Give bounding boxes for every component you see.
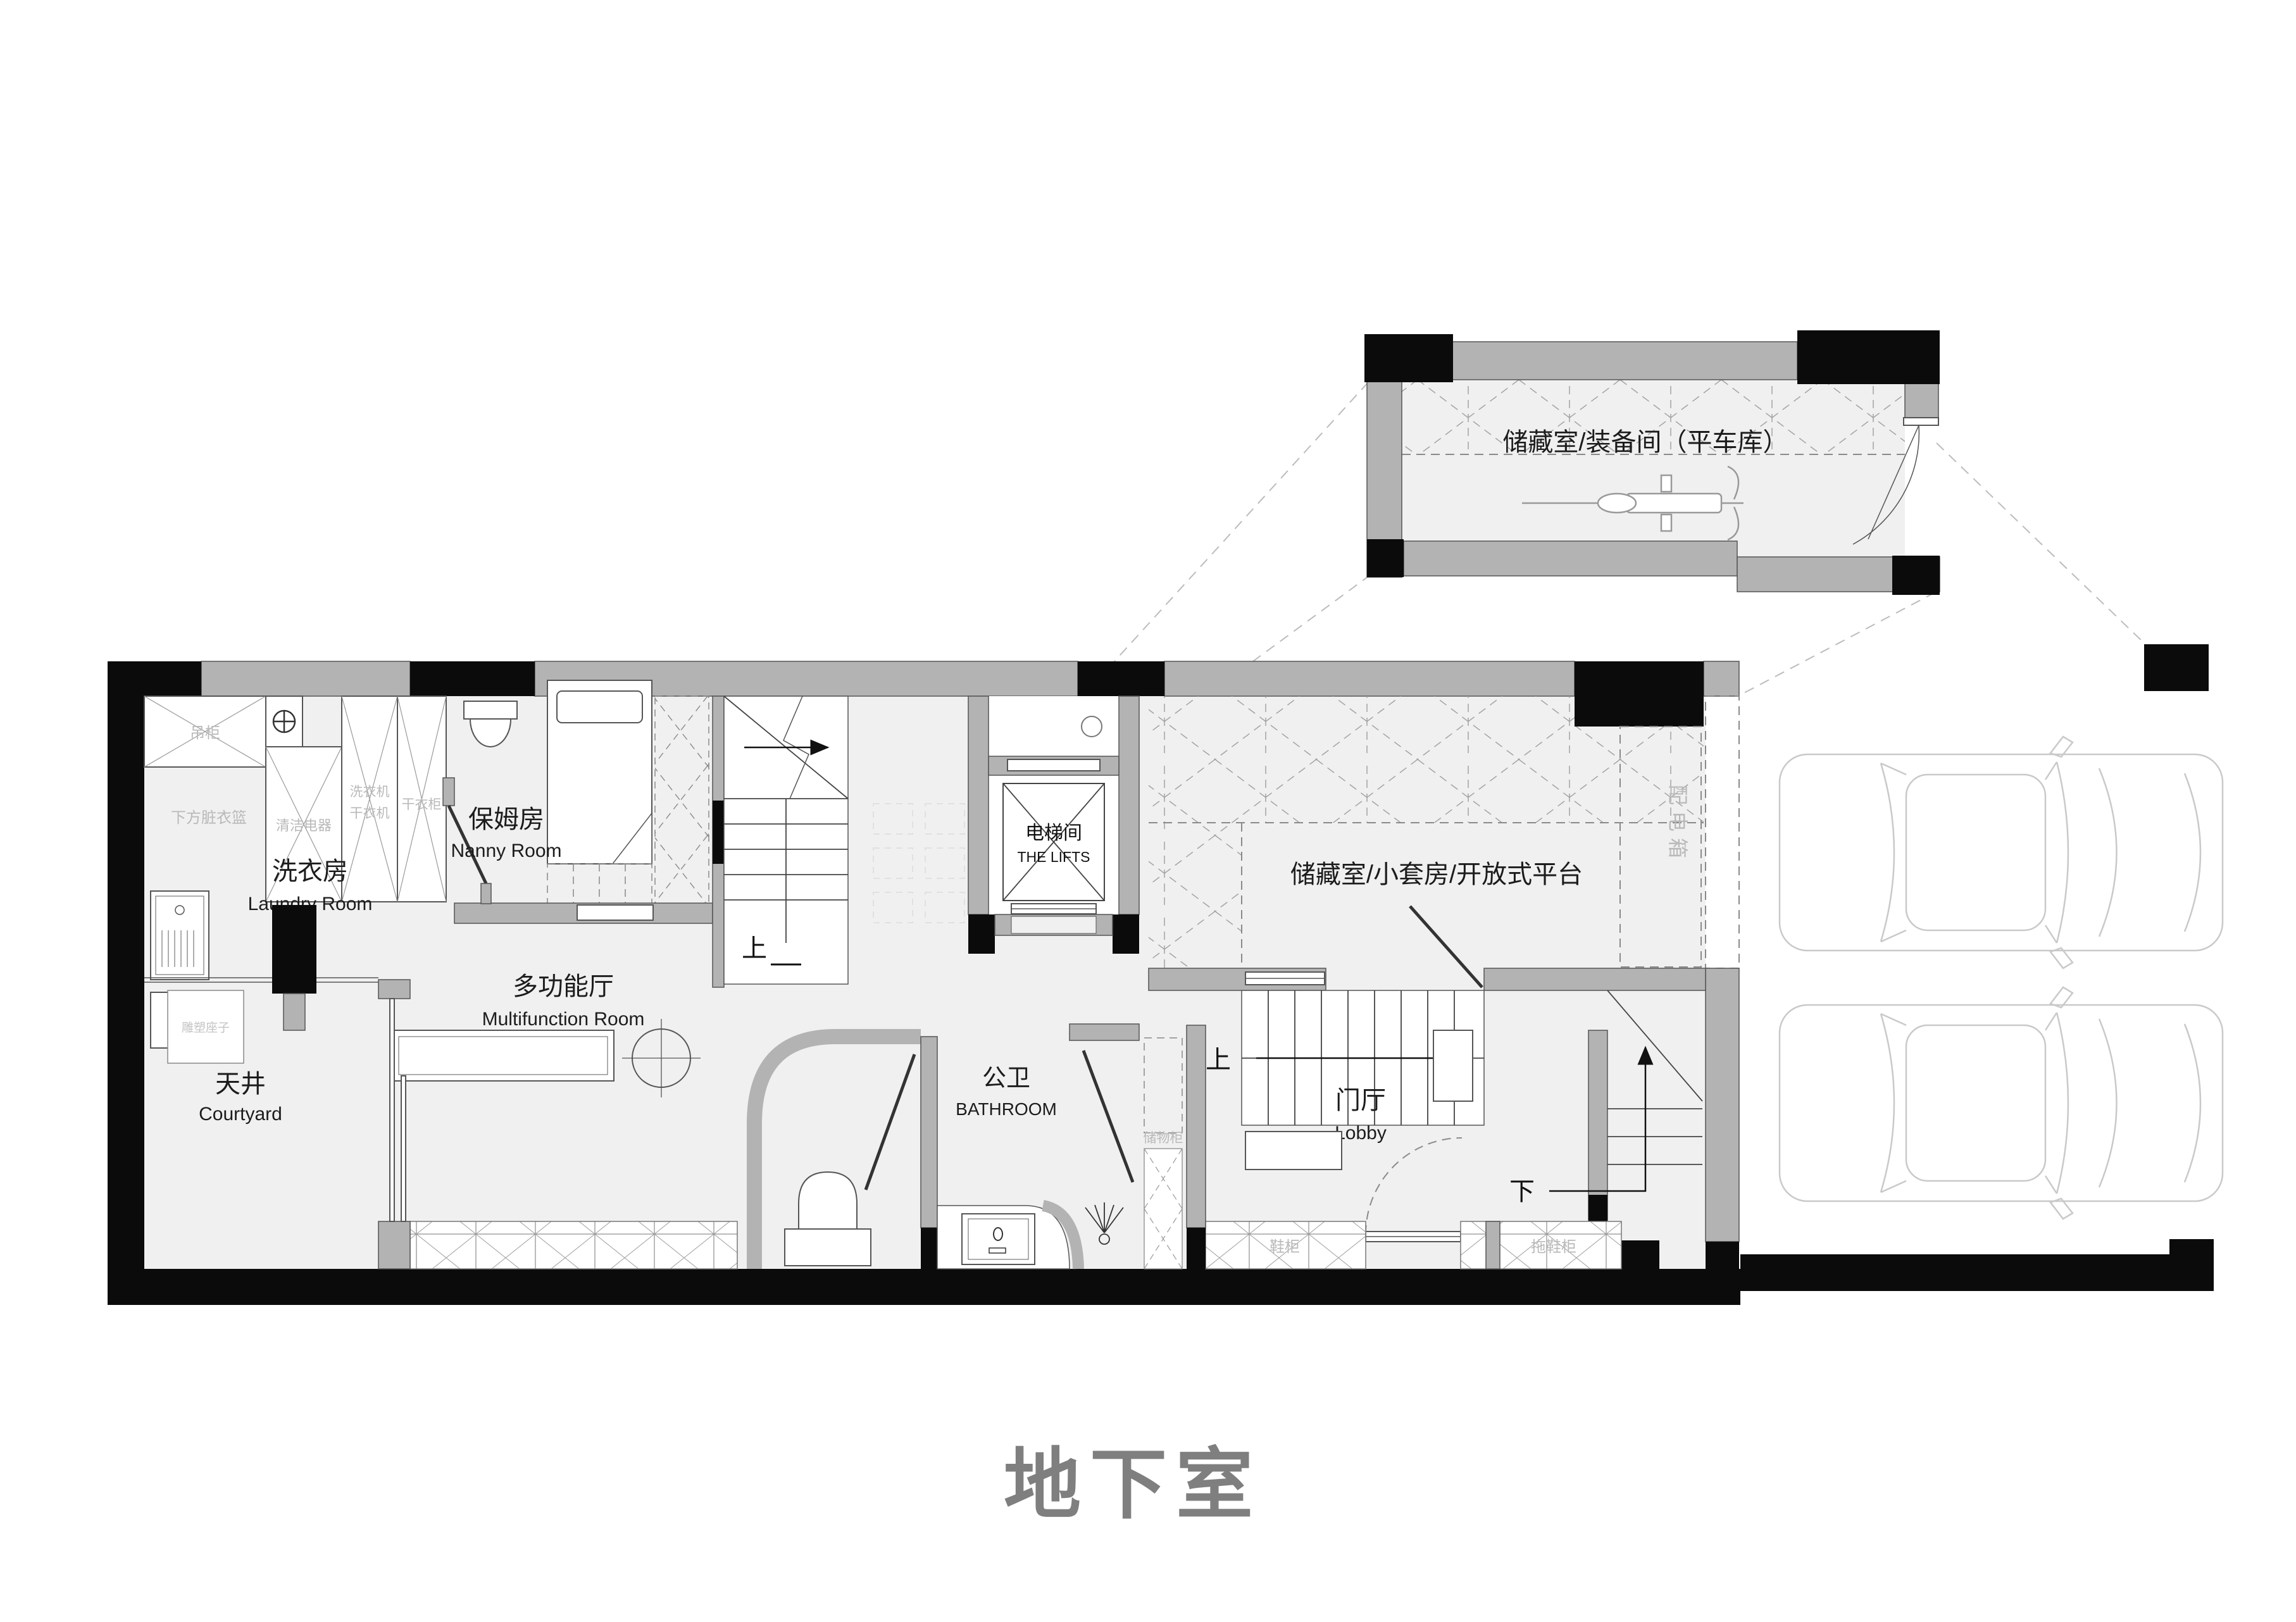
elevator: 电梯间 THE LIFTS (968, 696, 1139, 954)
long-table (392, 1030, 614, 1081)
svg-text:洗衣机: 洗衣机 (350, 785, 390, 799)
lobby-label-cn: 门厅 (1335, 1087, 1386, 1114)
courtyard-label-en: Courtyard (199, 1104, 282, 1125)
wall-stub-cap (284, 994, 305, 1030)
plan-title: 地下室 (1004, 1442, 1262, 1528)
window-glass (401, 1076, 406, 1221)
floor-plan-svg: 储藏室/装备间（平车库） 吊柜 下方脏衣篮 (0, 0, 2296, 1622)
svg-text:清洁电器: 清洁电器 (276, 818, 332, 833)
annex-column (1367, 539, 1404, 577)
lift-label-cn: 电梯间 (1025, 823, 1082, 844)
hanging-cabinet: 吊柜 (144, 696, 266, 767)
annex-wall (1905, 383, 1938, 420)
washer-dryer-cabinet: 洗衣机 干衣机 (342, 696, 397, 902)
annex-column (1892, 556, 1940, 595)
bathroom-label-cn: 公卫 (982, 1065, 1030, 1092)
courtyard-label-cn: 天井 (215, 1070, 266, 1098)
svg-text:配电箱: 配电箱 (1666, 785, 1689, 864)
floor-drain-icon (266, 696, 303, 747)
slipper-cabinet-label: 拖鞋柜 (1531, 1238, 1576, 1256)
multifunction-label-en: Multifunction Room (482, 1009, 645, 1030)
stair-up-label: 上 (1206, 1046, 1231, 1074)
annex-wall (1404, 541, 1737, 576)
multifunction-label-cn: 多功能厅 (513, 973, 614, 1001)
lobby-label-en: Lobby (1335, 1123, 1387, 1144)
laundry-label-cn: 洗衣房 (272, 858, 348, 885)
sculpture-pedestal: 雕塑座子 (168, 990, 244, 1063)
bench (1245, 1132, 1342, 1170)
nanny-label-cn: 保姆房 (468, 806, 544, 833)
console-table (1433, 1030, 1473, 1101)
storage-label: 储藏室/小套房/开放式平台 (1290, 861, 1583, 889)
wardrobe (655, 696, 709, 905)
drying-cabinet: 干衣柜 (397, 696, 446, 902)
stair-down-label: 下 (1509, 1178, 1535, 1206)
stair-wall-column (713, 801, 724, 864)
svg-text:储物柜: 储物柜 (1144, 1131, 1183, 1145)
shoe-cabinet-label: 鞋柜 (1270, 1238, 1300, 1256)
svg-text:雕塑座子: 雕塑座子 (182, 1021, 230, 1035)
annex-label: 储藏室/装备间（平车库） (1502, 428, 1788, 456)
sink-icon (962, 1214, 1035, 1264)
annex-column (1364, 334, 1453, 382)
bathroom-label-en: BATHROOM (956, 1099, 1057, 1119)
free-column (2144, 644, 2209, 691)
annex-column (1797, 330, 1940, 384)
svg-text:干衣机: 干衣机 (350, 806, 390, 821)
svg-text:干衣柜: 干衣柜 (402, 797, 442, 812)
laundry-basket-label: 下方脏衣篮 (171, 809, 247, 827)
lift-label-en: THE LIFTS (1017, 849, 1090, 865)
threshold (577, 905, 653, 920)
basement-floor-plan: 储藏室/装备间（平车库） 吊柜 下方脏衣篮 (0, 0, 2296, 1622)
svg-text:吊柜: 吊柜 (190, 725, 220, 742)
wall-stub (272, 905, 316, 994)
nanny-label-en: Nanny Room (451, 840, 561, 861)
stair-left: 上 (724, 696, 848, 984)
stair-up-label: 上 (742, 935, 767, 963)
window-glass (390, 999, 394, 1221)
